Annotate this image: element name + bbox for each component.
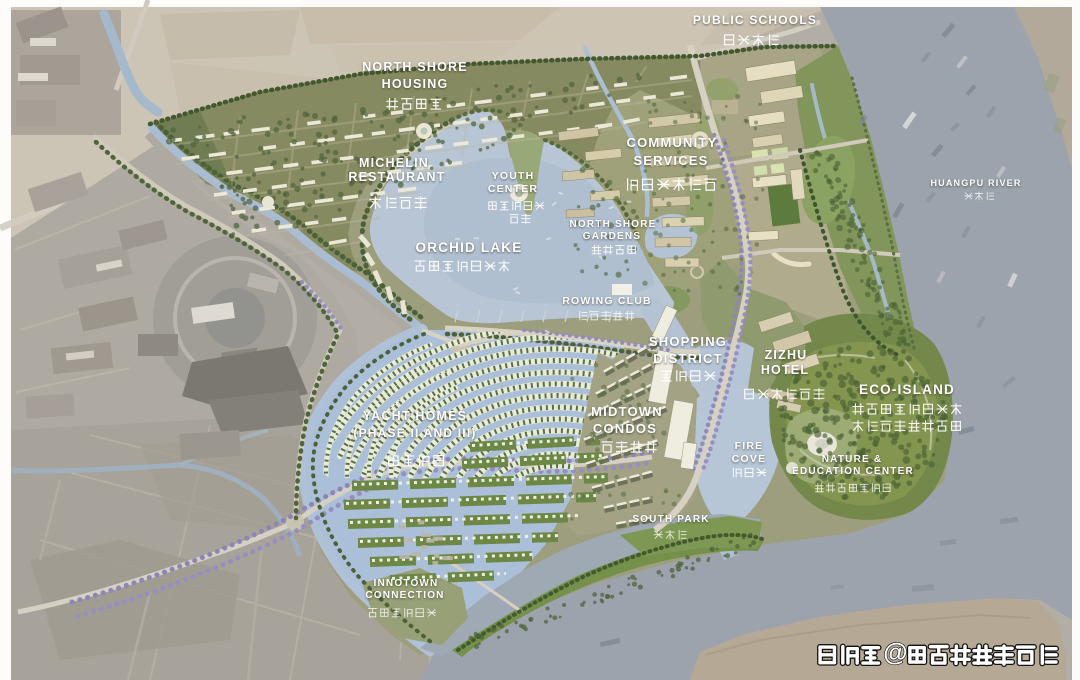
svg-text:PUBLIC SCHOOLS: PUBLIC SCHOOLS (693, 13, 817, 27)
svg-text:FIRE: FIRE (735, 440, 764, 452)
svg-text:SHOPPING: SHOPPING (649, 334, 727, 349)
svg-text:SERVICES: SERVICES (633, 153, 708, 168)
svg-text:ROWING CLUB: ROWING CLUB (562, 295, 652, 307)
svg-text:COVE: COVE (732, 453, 767, 465)
svg-text:ECO-ISLAND: ECO-ISLAND (859, 382, 955, 397)
svg-text:ORCHID LAKE: ORCHID LAKE (416, 240, 523, 255)
svg-text:(PHASE II AND III): (PHASE II AND III) (353, 426, 476, 440)
svg-text:NORTH SHORE: NORTH SHORE (569, 219, 656, 230)
svg-text:@: @ (883, 639, 907, 667)
svg-text:COMMUNITY: COMMUNITY (627, 135, 718, 150)
svg-text:SOUTH PARK: SOUTH PARK (632, 514, 709, 525)
svg-text:EDUCATION CENTER: EDUCATION CENTER (792, 466, 914, 477)
svg-text:YACHT HOMES: YACHT HOMES (363, 409, 467, 423)
svg-text:ZIZHU: ZIZHU (765, 348, 808, 362)
svg-text:HOTEL: HOTEL (761, 363, 809, 377)
svg-text:DISTRICT: DISTRICT (653, 351, 723, 366)
svg-text:NATURE &: NATURE & (822, 454, 883, 465)
svg-text:MICHELIN: MICHELIN (359, 156, 429, 170)
svg-text:CENTER: CENTER (488, 183, 538, 195)
svg-text:HOUSING: HOUSING (382, 77, 449, 91)
svg-text:RESTAURANT: RESTAURANT (348, 170, 445, 184)
svg-text:HUANGPU RIVER: HUANGPU RIVER (930, 178, 1021, 188)
svg-text:INNOTOWN: INNOTOWN (374, 578, 439, 589)
svg-text:CONNECTION: CONNECTION (365, 590, 444, 601)
svg-text:GARDENS: GARDENS (583, 231, 641, 242)
svg-text:NORTH SHORE: NORTH SHORE (362, 60, 468, 74)
svg-text:MIDTOWN: MIDTOWN (591, 404, 663, 419)
svg-text:YOUTH: YOUTH (492, 170, 535, 182)
svg-text:CONDOS: CONDOS (593, 421, 657, 436)
